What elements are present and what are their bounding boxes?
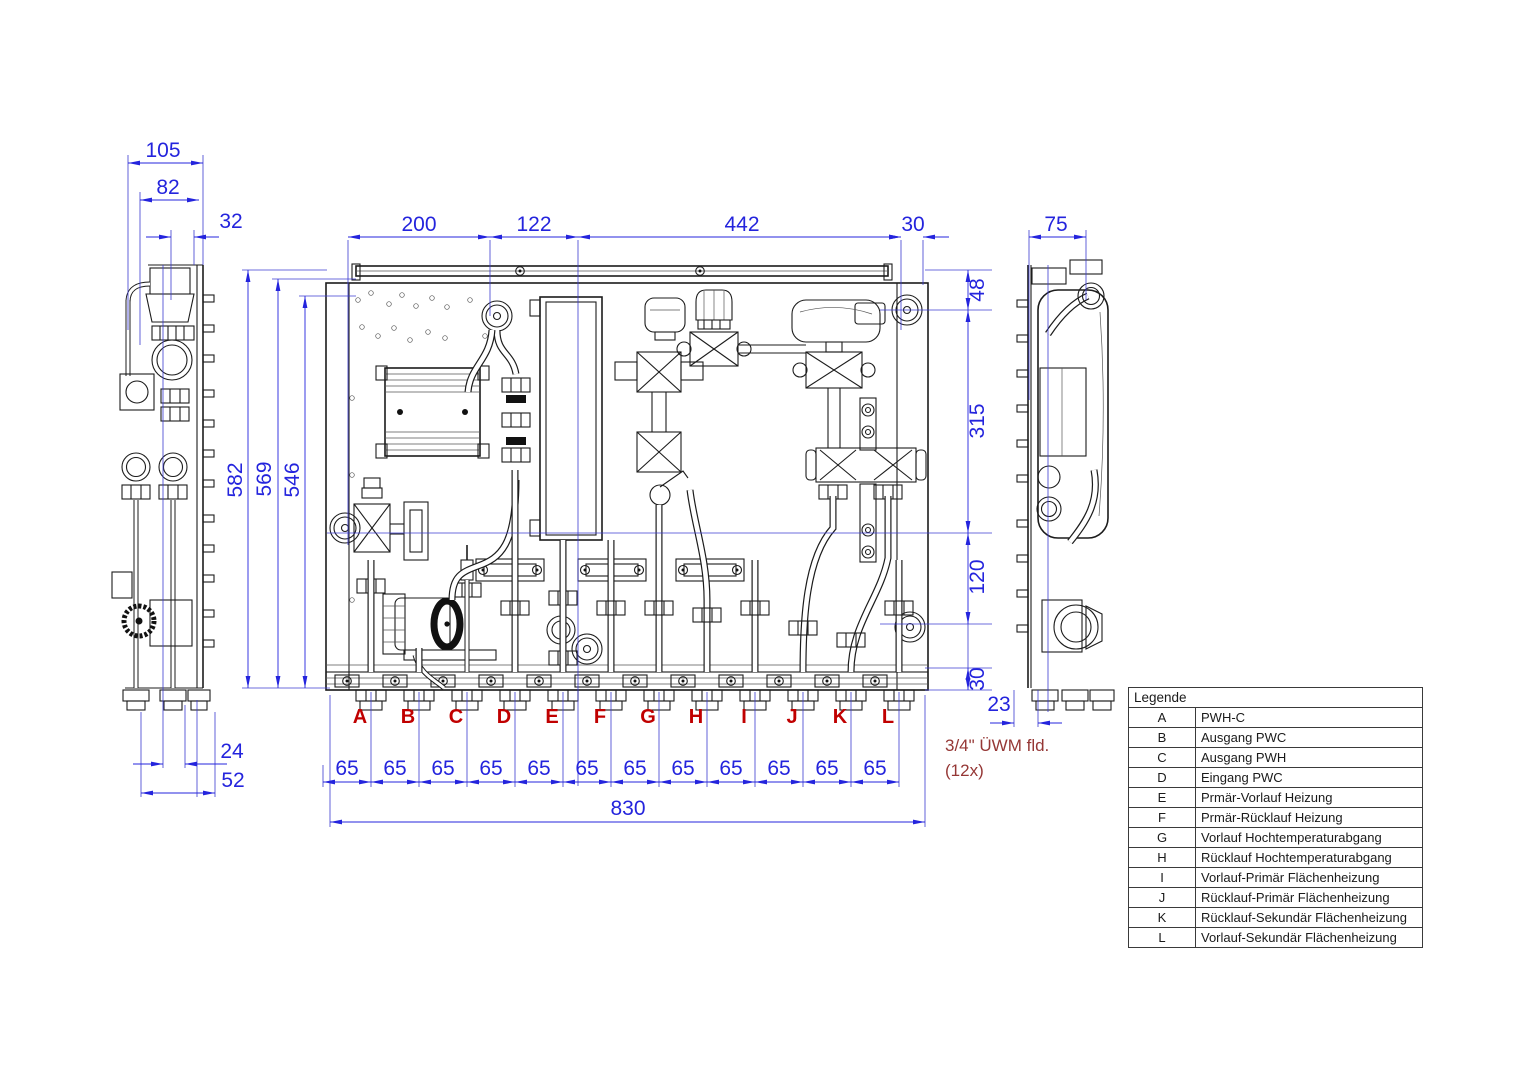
legend-row: FPrmär-Rücklauf Heizung (1129, 808, 1423, 828)
fitting-note-line1: 3/4" ÜWM fld. (945, 733, 1049, 758)
legend-row: KRücklauf-Sekundär Flächenheizung (1129, 908, 1423, 928)
legend-key: G (1129, 828, 1196, 848)
dim-23: 23 (987, 693, 1010, 716)
legend-label: Prmär-Vorlauf Heizung (1196, 788, 1423, 808)
dim-65-11: 65 (815, 757, 838, 780)
dim-582: 582 (224, 462, 247, 497)
dim-105: 105 (145, 139, 180, 162)
dim-65-6: 65 (575, 757, 598, 780)
legend-key: A (1129, 708, 1196, 728)
dim-65-3: 65 (431, 757, 454, 780)
backplate-bolts-right (1017, 300, 1028, 632)
dim-32: 32 (219, 210, 242, 233)
connection-label-i: I (741, 706, 747, 728)
zone-actuator (645, 298, 685, 340)
center-valve-column (615, 352, 703, 505)
legend-label: PWH-C (1196, 708, 1423, 728)
dimension-texts: 105 82 32 24 52 200 122 442 30 582 569 5… (145, 139, 1067, 820)
connection-label-k: K (833, 706, 848, 728)
left-tee-valve (354, 478, 428, 560)
technical-drawing-page: 105 82 32 24 52 200 122 442 30 582 569 5… (0, 0, 1528, 1080)
legend-title: Legende (1129, 688, 1423, 708)
heat-exchanger (530, 297, 602, 540)
legend-row: CAusgang PWH (1129, 748, 1423, 768)
legend-label: Ausgang PWH (1196, 748, 1423, 768)
right-side-view-drawing (1017, 260, 1114, 710)
dim-65-8: 65 (671, 757, 694, 780)
dim-30-top: 30 (901, 213, 924, 236)
dim-65-12: 65 (863, 757, 886, 780)
dim-24: 24 (220, 740, 244, 763)
legend-label: Rücklauf-Sekundär Flächenheizung (1196, 908, 1423, 928)
front-view-drawing (326, 264, 928, 710)
dim-30-right: 30 (966, 667, 989, 690)
legend-label: Ausgang PWC (1196, 728, 1423, 748)
legend-row: JRücklauf-Primär Flächenheizung (1129, 888, 1423, 908)
legend-key: L (1129, 928, 1196, 948)
connection-label-b: B (401, 706, 415, 728)
connection-label-g: G (640, 706, 656, 728)
connection-label-h: H (689, 706, 703, 728)
dim-442: 442 (724, 213, 759, 236)
thermostatic-head (677, 290, 751, 366)
legend-row: LVorlauf-Sekundär Flächenheizung (1129, 928, 1423, 948)
legend-key: K (1129, 908, 1196, 928)
mounting-hole (330, 513, 360, 543)
right-view-connectors (1032, 690, 1114, 710)
legend-row: HRücklauf Hochtemperaturabgang (1129, 848, 1423, 868)
legend-label: Eingang PWC (1196, 768, 1423, 788)
mounting-hole (482, 301, 512, 331)
legend-key: J (1129, 888, 1196, 908)
connection-label-d: D (497, 706, 511, 728)
legend-key: E (1129, 788, 1196, 808)
legend-label: Vorlauf-Primär Flächenheizung (1196, 868, 1423, 888)
connection-label-a: A (353, 706, 367, 728)
dim-200: 200 (401, 213, 436, 236)
legend-row: APWH-C (1129, 708, 1423, 728)
dim-65-7: 65 (623, 757, 646, 780)
legend-row: GVorlauf Hochtemperaturabgang (1129, 828, 1423, 848)
legend-label: Prmär-Rücklauf Heizung (1196, 808, 1423, 828)
legend-label: Rücklauf Hochtemperaturabgang (1196, 848, 1423, 868)
dim-315: 315 (966, 403, 989, 438)
dim-52: 52 (221, 769, 244, 792)
dim-65-5: 65 (527, 757, 550, 780)
connection-label-e: E (545, 706, 558, 728)
pump (357, 579, 496, 660)
legend-table: Legende APWH-C BAusgang PWC CAusgang PWH… (1128, 687, 1423, 948)
dim-75: 75 (1044, 213, 1067, 236)
motor-actuator-valve (738, 300, 880, 448)
dim-830: 830 (610, 797, 645, 820)
connection-label-l: L (882, 706, 894, 728)
legend-key: C (1129, 748, 1196, 768)
fitting-note-line2: (12x) (945, 758, 984, 783)
legend-key: B (1129, 728, 1196, 748)
connection-labels: A B C D E F G H I J K L (353, 706, 894, 728)
dim-65-10: 65 (767, 757, 790, 780)
manifold-screws (335, 675, 887, 687)
connection-label-j: J (786, 706, 797, 728)
dim-48: 48 (966, 278, 989, 301)
legend-label: Vorlauf Hochtemperaturabgang (1196, 828, 1423, 848)
dim-569: 569 (253, 461, 276, 496)
legend-label: Vorlauf-Sekundär Flächenheizung (1196, 928, 1423, 948)
dim-120: 120 (966, 559, 989, 594)
dim-65-2: 65 (383, 757, 406, 780)
dim-65-4: 65 (479, 757, 502, 780)
bottom-connections (356, 690, 914, 710)
legend-row: IVorlauf-Primär Flächenheizung (1129, 868, 1423, 888)
connection-label-c: C (449, 706, 463, 728)
dim-122: 122 (516, 213, 551, 236)
legend-key: I (1129, 868, 1196, 888)
legend-label: Rücklauf-Primär Flächenheizung (1196, 888, 1423, 908)
dim-65-1: 65 (335, 757, 358, 780)
dim-65-9: 65 (719, 757, 742, 780)
dim-82: 82 (156, 176, 179, 199)
legend-row: BAusgang PWC (1129, 728, 1423, 748)
legend-key: F (1129, 808, 1196, 828)
legend-row: DEingang PWC (1129, 768, 1423, 788)
dim-546: 546 (281, 462, 304, 497)
connection-label-f: F (594, 706, 606, 728)
legend-key: H (1129, 848, 1196, 868)
backplate-bolts (203, 295, 214, 647)
legend-row: EPrmär-Vorlauf Heizung (1129, 788, 1423, 808)
legend-key: D (1129, 768, 1196, 788)
